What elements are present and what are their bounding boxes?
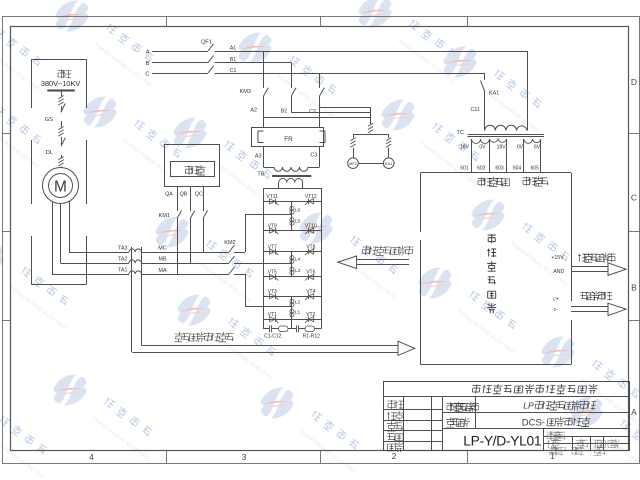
- svg-text:L1: L1: [295, 309, 301, 315]
- svg-text:A: A: [631, 407, 637, 417]
- svg-text:TA3: TA3: [118, 246, 128, 252]
- svg-text:C: C: [145, 71, 149, 77]
- svg-text:R1-R12: R1-R12: [303, 334, 320, 340]
- svg-text:C2: C2: [309, 109, 316, 115]
- svg-text:B2: B2: [281, 108, 288, 114]
- svg-text:c-: c-: [554, 307, 559, 313]
- svg-text:TB: TB: [257, 172, 264, 178]
- svg-text:QB: QB: [180, 191, 188, 197]
- svg-text:VT5: VT5: [268, 270, 277, 276]
- svg-text:A1: A1: [230, 46, 237, 52]
- svg-text:VT1: VT1: [268, 312, 277, 318]
- svg-text:DL: DL: [46, 150, 54, 156]
- svg-text:QF1: QF1: [201, 40, 212, 46]
- svg-text:MA: MA: [158, 268, 166, 274]
- svg-text:DCS-: DCS-: [522, 417, 545, 428]
- svg-text:L5: L5: [295, 219, 301, 225]
- svg-text:TA1: TA1: [118, 268, 128, 274]
- svg-text:MC: MC: [158, 246, 166, 252]
- svg-text:3: 3: [242, 452, 247, 462]
- svg-text:A3: A3: [255, 153, 262, 159]
- svg-text:VT8: VT8: [306, 244, 315, 250]
- svg-text:L4: L4: [295, 257, 301, 263]
- svg-text:6V: 6V: [534, 145, 541, 151]
- svg-text:B: B: [631, 283, 637, 293]
- svg-text:c+: c+: [553, 297, 559, 303]
- svg-text:KM3: KM3: [239, 89, 251, 95]
- svg-text:601: 601: [460, 166, 469, 172]
- svg-text:VT3: VT3: [268, 289, 277, 295]
- svg-text:GS: GS: [45, 117, 54, 123]
- svg-text:B1: B1: [230, 57, 237, 63]
- svg-text:C11: C11: [471, 107, 481, 113]
- svg-text:VT9: VT9: [268, 223, 277, 229]
- svg-text:MF1: MF1: [349, 161, 357, 166]
- svg-text:KM1: KM1: [159, 213, 171, 219]
- svg-text:C: C: [631, 193, 637, 203]
- svg-text:C3: C3: [310, 152, 317, 158]
- svg-text:VT11: VT11: [266, 194, 278, 200]
- svg-text:KA1: KA1: [385, 161, 392, 166]
- svg-text:VT10: VT10: [305, 223, 317, 229]
- svg-text:2: 2: [392, 451, 397, 461]
- svg-text:LP: LP: [523, 400, 534, 410]
- svg-text:4: 4: [89, 452, 94, 462]
- svg-text:380V--10KV: 380V--10KV: [41, 79, 82, 88]
- svg-text:604: 604: [513, 166, 522, 172]
- svg-text:L2: L2: [295, 300, 301, 306]
- svg-text:0V: 0V: [517, 145, 524, 151]
- svg-text:TC: TC: [457, 130, 464, 136]
- svg-text:B: B: [146, 61, 150, 67]
- svg-text:M: M: [54, 179, 67, 196]
- svg-text:+15V: +15V: [551, 255, 564, 261]
- svg-text:L3: L3: [295, 268, 301, 274]
- svg-text:FR: FR: [284, 136, 293, 143]
- svg-text:VT4: VT4: [306, 289, 315, 295]
- svg-text:VT2: VT2: [306, 312, 315, 318]
- svg-text:18V: 18V: [460, 145, 470, 151]
- svg-text:KA1: KA1: [489, 91, 499, 97]
- svg-text:C1-C12: C1-C12: [264, 334, 281, 340]
- svg-text:C1: C1: [230, 68, 237, 74]
- svg-text:TA2: TA2: [118, 257, 128, 263]
- svg-text:0V: 0V: [479, 145, 486, 151]
- svg-text:A2: A2: [250, 108, 257, 114]
- svg-text:605: 605: [531, 166, 540, 172]
- svg-text:L6: L6: [295, 208, 301, 214]
- svg-text:VT12: VT12: [305, 194, 317, 200]
- svg-text:A: A: [146, 49, 150, 55]
- svg-text:602: 602: [477, 166, 486, 172]
- svg-text:18V: 18V: [497, 145, 507, 151]
- svg-text:MB: MB: [158, 257, 166, 263]
- svg-text:AND: AND: [553, 269, 564, 275]
- svg-text:2: 2: [564, 447, 566, 451]
- svg-text:VT6: VT6: [306, 270, 315, 276]
- svg-text:QC: QC: [195, 191, 203, 197]
- svg-text:D: D: [631, 77, 637, 87]
- svg-text:603: 603: [495, 166, 504, 172]
- svg-text:QA: QA: [165, 191, 173, 197]
- svg-text:LP-Y/D-YL01: LP-Y/D-YL01: [463, 434, 541, 449]
- svg-text:VT7: VT7: [268, 244, 277, 250]
